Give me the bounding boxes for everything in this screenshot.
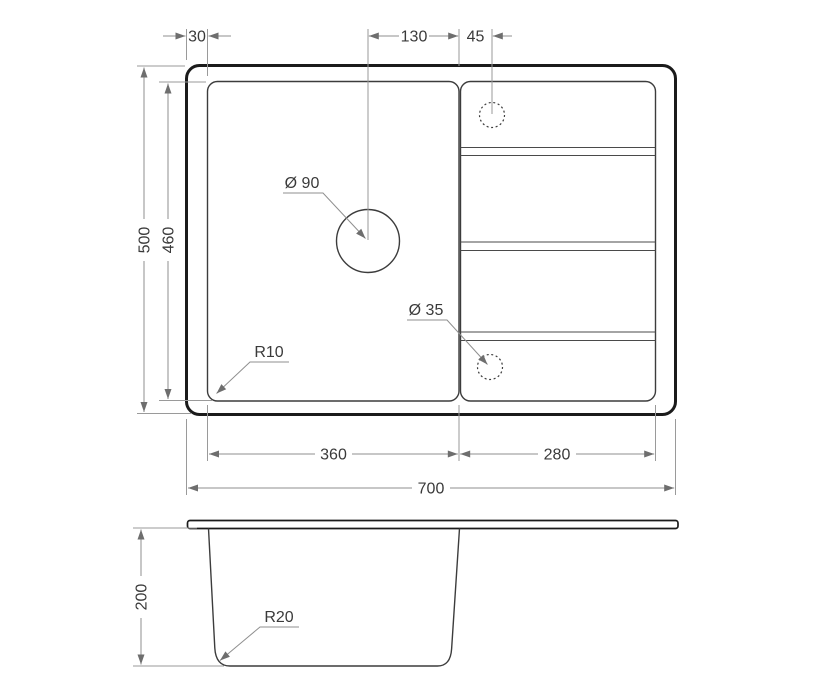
dimension-label-overall-width: 700 bbox=[418, 481, 445, 498]
label-drain-hole-diameter: Ø 35 bbox=[409, 302, 444, 319]
leader-line-section-bottom-radius bbox=[220, 627, 299, 661]
top-view-dimensions: 30 130 45 500 460 360 280 bbox=[137, 29, 676, 498]
section-bowl-profile bbox=[209, 529, 460, 667]
leader-line-faucet-hole bbox=[283, 193, 366, 239]
dimension-label-divider-to-drain: 45 bbox=[467, 29, 485, 46]
leader-line-drain-hole bbox=[407, 320, 488, 365]
dimension-label-faucet-to-divider: 130 bbox=[401, 29, 428, 46]
section-rim-bar bbox=[188, 521, 679, 529]
dimension-label-overall-depth: 500 bbox=[137, 227, 154, 254]
drainboard-grooves bbox=[461, 148, 656, 341]
section-view: 200 R20 bbox=[133, 521, 678, 667]
label-faucet-hole-diameter: Ø 90 bbox=[285, 175, 320, 192]
leader-line-bowl-corner-radius bbox=[217, 362, 290, 394]
dimension-label-rim-offset: 30 bbox=[188, 29, 206, 46]
label-section-bottom-radius: R20 bbox=[264, 609, 293, 626]
dimension-label-bowl-depth: 460 bbox=[161, 227, 178, 254]
sink-technical-drawing: 30 130 45 500 460 360 280 bbox=[0, 0, 816, 700]
dimension-label-drainboard-width: 280 bbox=[544, 447, 571, 464]
dimension-label-bowl-width: 360 bbox=[320, 447, 347, 464]
sink-bowl bbox=[208, 82, 460, 402]
label-bowl-corner-radius: R10 bbox=[254, 344, 283, 361]
drainboard-panel bbox=[461, 82, 656, 402]
dimension-label-section-depth: 200 bbox=[134, 584, 151, 611]
